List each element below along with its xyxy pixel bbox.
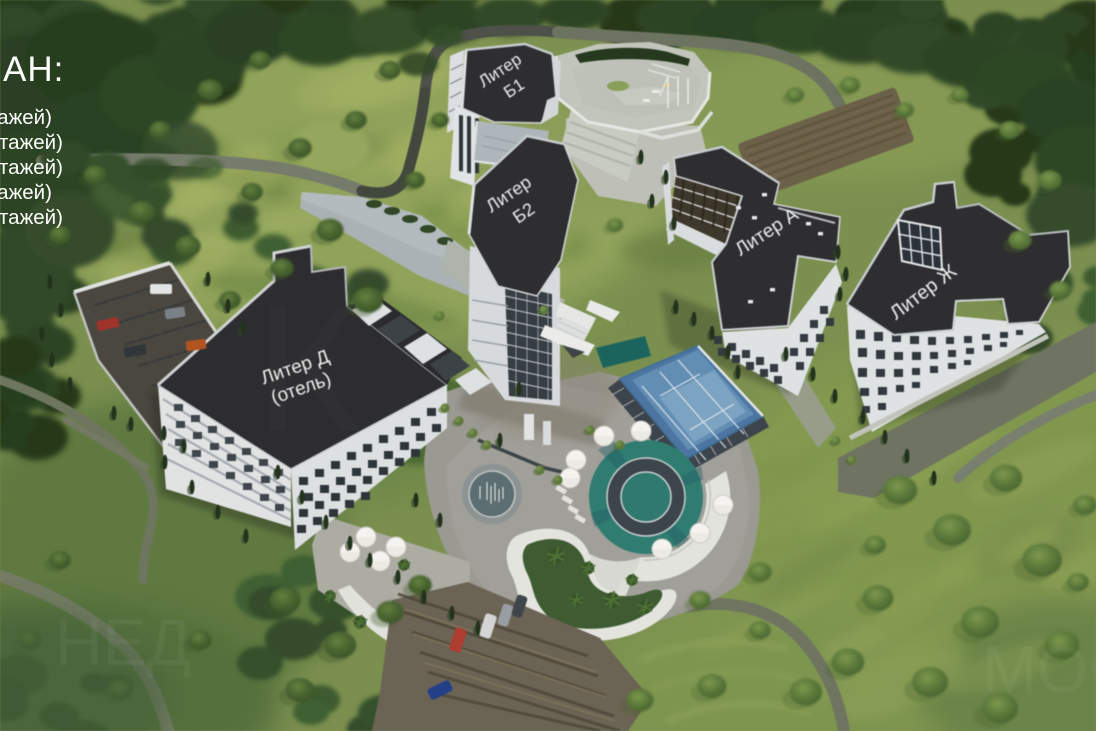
svg-text:К: К [255,268,360,469]
svg-text:МОС: МОС [982,632,1096,706]
svg-text:НЕД: НЕД [55,605,191,679]
